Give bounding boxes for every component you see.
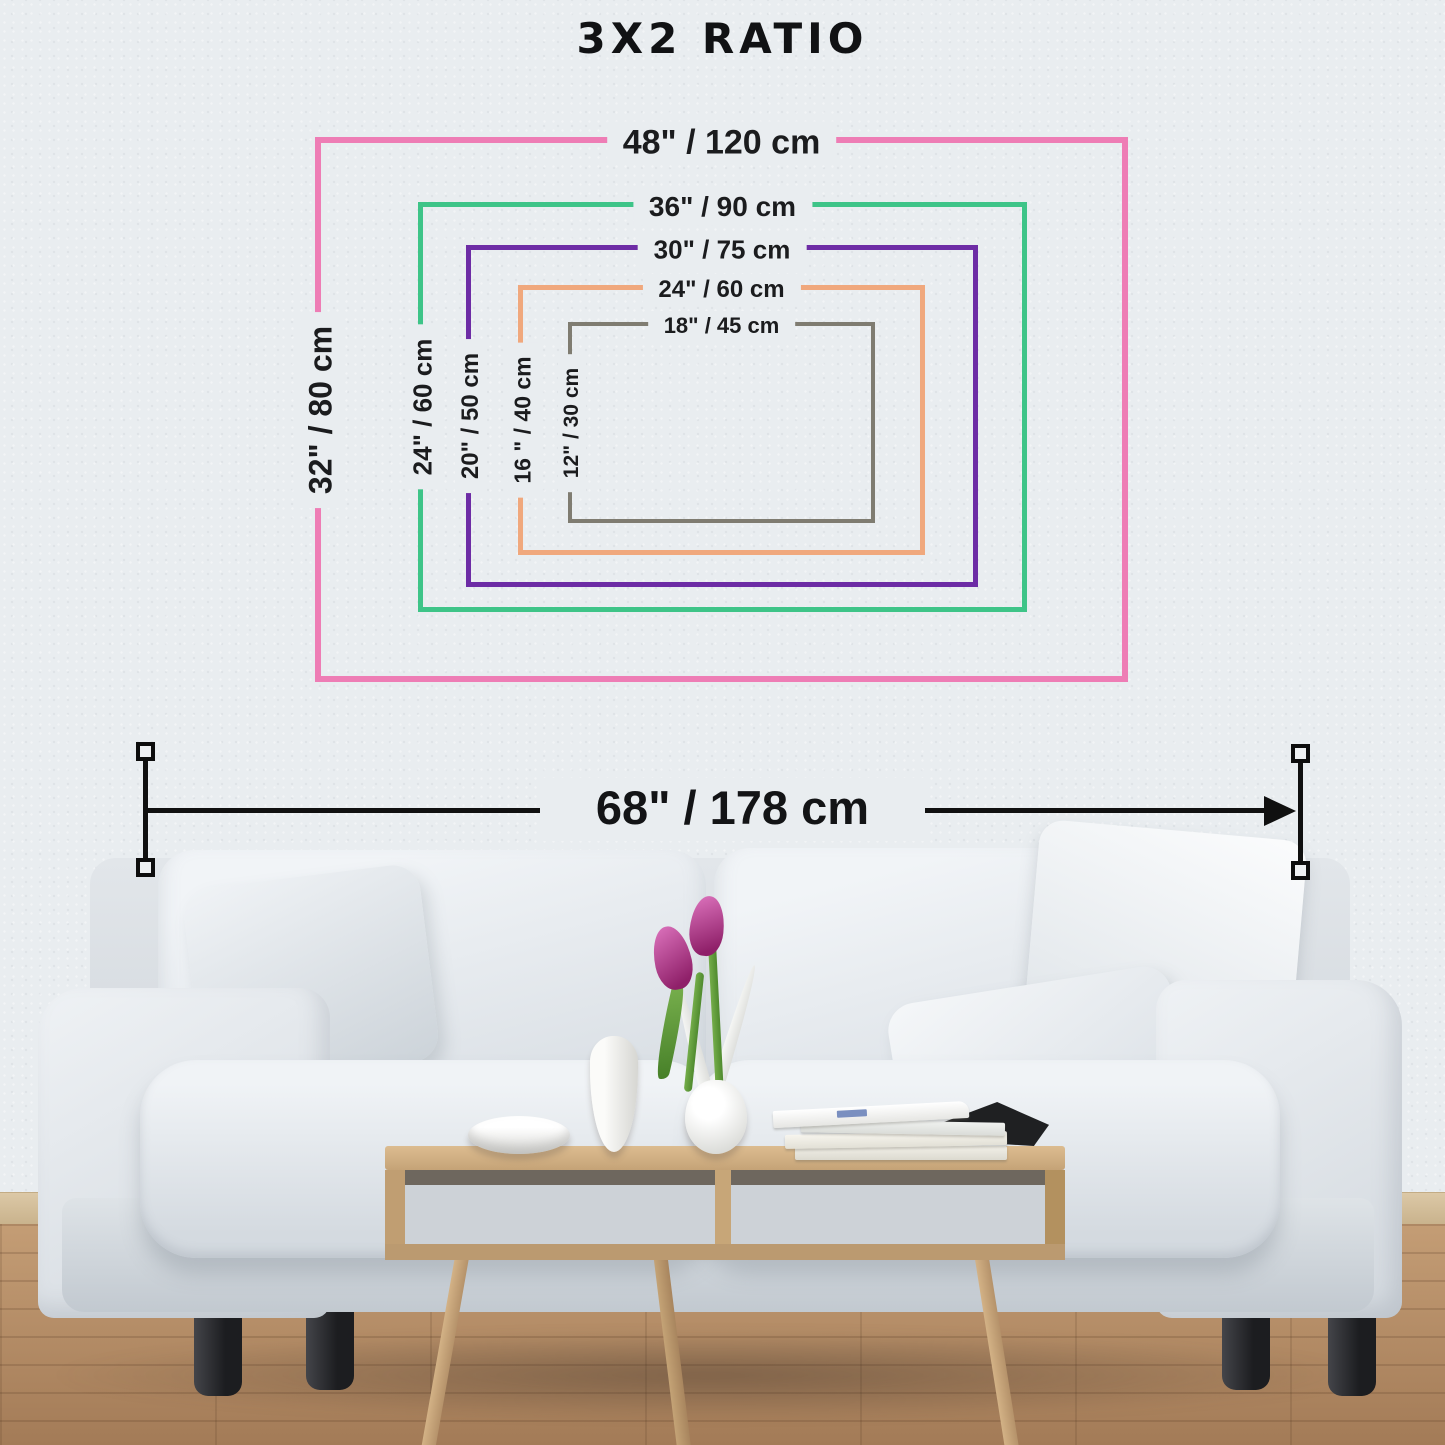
handle-square-icon (1291, 744, 1310, 763)
coffee-table (385, 1146, 1065, 1260)
sofa-floor-shadow (45, 1330, 1375, 1420)
size-width-label-30x20: 30" / 75 cm (638, 233, 807, 268)
handle-square-icon (136, 858, 155, 877)
magazine-photo (837, 1109, 867, 1118)
size-width-label-18x12: 18" / 45 cm (648, 311, 796, 341)
size-width-label-48x32: 48" / 120 cm (607, 122, 837, 165)
table-side-panel (385, 1170, 405, 1244)
wall-width-label: 68" / 178 cm (540, 778, 925, 841)
table-divider (715, 1170, 731, 1244)
size-width-label-36x24: 36" / 90 cm (633, 189, 812, 225)
dimension-end-bar-left (143, 752, 148, 868)
size-height-label-18x12: 12" / 30 cm (558, 353, 586, 491)
size-guide-infographic: 3X2 RATIO 48" / 120 cm 32" / 80 cm 36" /… (0, 0, 1445, 1445)
table-bottom-panel (385, 1244, 1065, 1260)
size-height-label-36x24: 24" / 60 cm (406, 325, 441, 490)
dimension-arrow-icon (1264, 796, 1296, 826)
decor-vase-tulips (685, 1080, 747, 1154)
magazine-stack (785, 1100, 1035, 1160)
handle-square-icon (1291, 861, 1310, 880)
size-width-label-24x16: 24" / 60 cm (642, 274, 800, 306)
size-rectangle-18x12: 18" / 45 cm 12" / 30 cm (568, 322, 875, 523)
decor-bowl (468, 1116, 570, 1154)
size-height-label-30x20: 20" / 50 cm (455, 339, 487, 493)
handle-square-icon (136, 742, 155, 761)
page-title: 3X2 RATIO (0, 14, 1445, 63)
size-height-label-24x16: 16 " / 40 cm (508, 342, 539, 497)
size-height-label-48x32: 32" / 80 cm (301, 311, 342, 507)
dimension-end-bar-right (1298, 752, 1303, 868)
table-side-panel (1045, 1170, 1065, 1244)
